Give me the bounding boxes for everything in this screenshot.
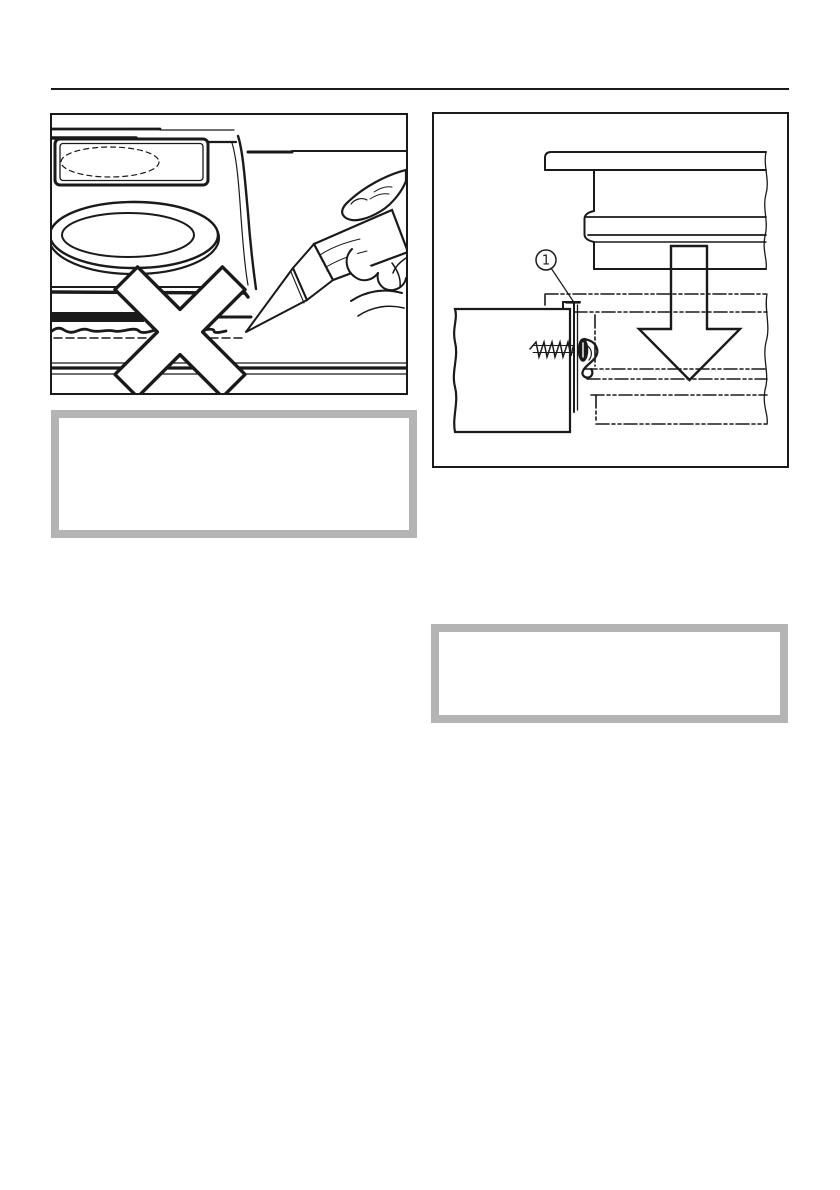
figure-sealant-prohibition	[50, 113, 408, 395]
callout-1: 1	[536, 250, 580, 303]
figure-bracket-mounting: 1	[432, 112, 789, 468]
sealant-prohibition-drawing	[52, 115, 406, 393]
cabinet-panel	[454, 309, 570, 432]
callout-label: 1	[542, 254, 550, 269]
thumb	[342, 170, 406, 220]
note-box-left-content	[59, 418, 409, 530]
note-box-right	[431, 624, 788, 723]
fixing-bracket	[563, 302, 580, 412]
finger	[378, 273, 406, 290]
header-rule	[51, 88, 789, 90]
manual-page: 1	[0, 0, 840, 1190]
front-burner-ellipses	[52, 202, 219, 274]
cooktop-profile	[545, 152, 766, 269]
note-box-right-content	[439, 632, 780, 715]
down-arrow-icon	[639, 246, 740, 380]
sealant-bead	[52, 328, 244, 338]
worktop-phantom-outline	[545, 294, 767, 424]
rear-burner-frame	[55, 139, 208, 185]
worktop-break-edge	[764, 294, 768, 424]
bracket-mounting-drawing: 1	[434, 114, 787, 466]
mounting-screw	[530, 339, 588, 361]
note-box-left	[51, 410, 417, 538]
caulk-gun-hand	[246, 170, 406, 332]
